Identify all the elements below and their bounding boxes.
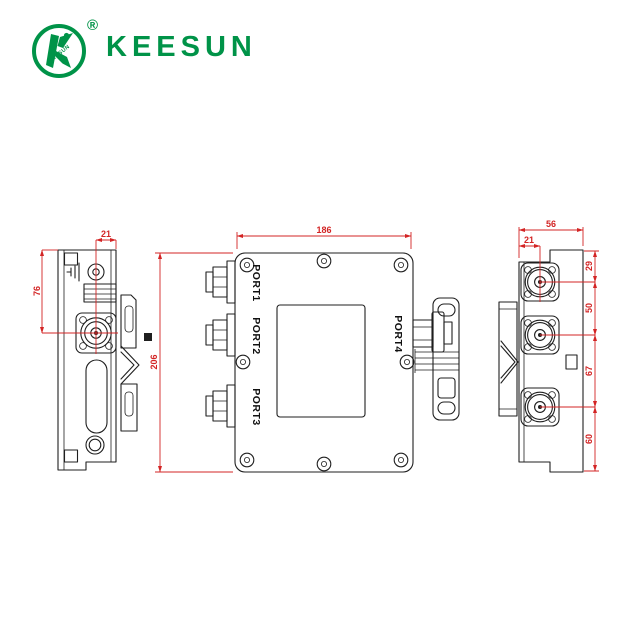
dim-label-67: 67 xyxy=(584,366,594,376)
right-side-view: 56 21 29 50 67 60 xyxy=(499,219,599,472)
bottom-hole-inner xyxy=(89,439,101,451)
dim-label-60: 60 xyxy=(584,434,594,444)
technical-drawing: 21 76 xyxy=(0,0,640,640)
dim-label-50: 50 xyxy=(584,303,594,313)
left-side-view: 21 76 xyxy=(32,229,139,470)
label-plate xyxy=(277,305,365,417)
left-view-dimensions: 21 76 xyxy=(32,229,118,354)
dim-label-76: 76 xyxy=(32,286,42,296)
left-view-outline xyxy=(58,250,116,470)
dim-label-29: 29 xyxy=(584,261,594,271)
dim-label-206: 206 xyxy=(149,354,159,369)
antenna-symbol-icon xyxy=(67,263,79,281)
port2-label: PORT2 xyxy=(250,317,262,355)
dim-label-186: 186 xyxy=(316,225,331,235)
extension-line xyxy=(155,253,233,472)
port4-label: PORT4 xyxy=(392,315,404,353)
top-notch xyxy=(65,253,78,265)
dim-label-56: 56 xyxy=(546,219,556,229)
dim-label-21: 21 xyxy=(524,235,534,245)
rail-profile xyxy=(499,302,518,416)
side-cutout xyxy=(566,355,577,369)
port1-connector-stub xyxy=(206,261,235,303)
port3-connector-stub xyxy=(206,385,235,427)
right-view-outline xyxy=(519,250,583,472)
dim-label-21: 21 xyxy=(101,229,111,239)
port3-label: PORT3 xyxy=(250,388,262,426)
side-slot xyxy=(86,360,107,433)
mounting-bracket xyxy=(415,298,459,420)
bottom-notch xyxy=(65,450,78,462)
din-rail-clamp xyxy=(121,295,139,431)
product-drawing-page: KEESUN ® KEESUN xyxy=(0,0,640,640)
port2-connector-stub xyxy=(206,314,235,356)
datum-square xyxy=(144,333,152,341)
port4-connector-stub xyxy=(413,320,433,347)
port1-label: PORT1 xyxy=(250,264,262,302)
front-view: PORT1 PORT2 PORT3 PORT4 18 xyxy=(144,225,459,472)
